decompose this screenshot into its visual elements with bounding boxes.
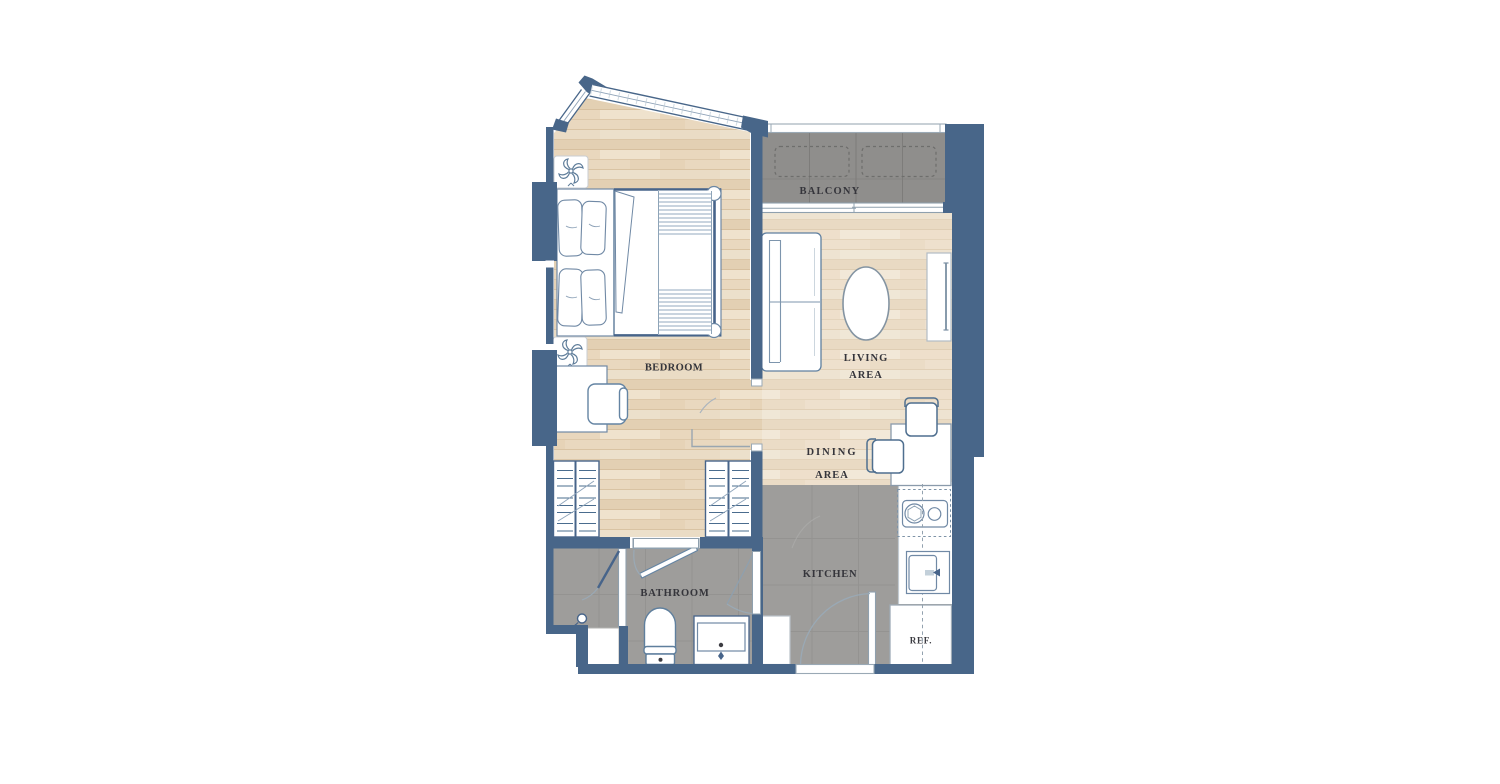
svg-text:AREA: AREA: [815, 470, 849, 481]
svg-text:AREA: AREA: [849, 370, 883, 381]
svg-text:BATHROOM: BATHROOM: [640, 588, 709, 599]
svg-text:BEDROOM: BEDROOM: [645, 363, 703, 374]
svg-text:REF.: REF.: [910, 636, 933, 646]
svg-text:BALCONY: BALCONY: [800, 186, 861, 197]
svg-text:LIVING: LIVING: [844, 353, 889, 364]
svg-text:KITCHEN: KITCHEN: [803, 569, 858, 580]
svg-text:DINING: DINING: [806, 447, 857, 458]
